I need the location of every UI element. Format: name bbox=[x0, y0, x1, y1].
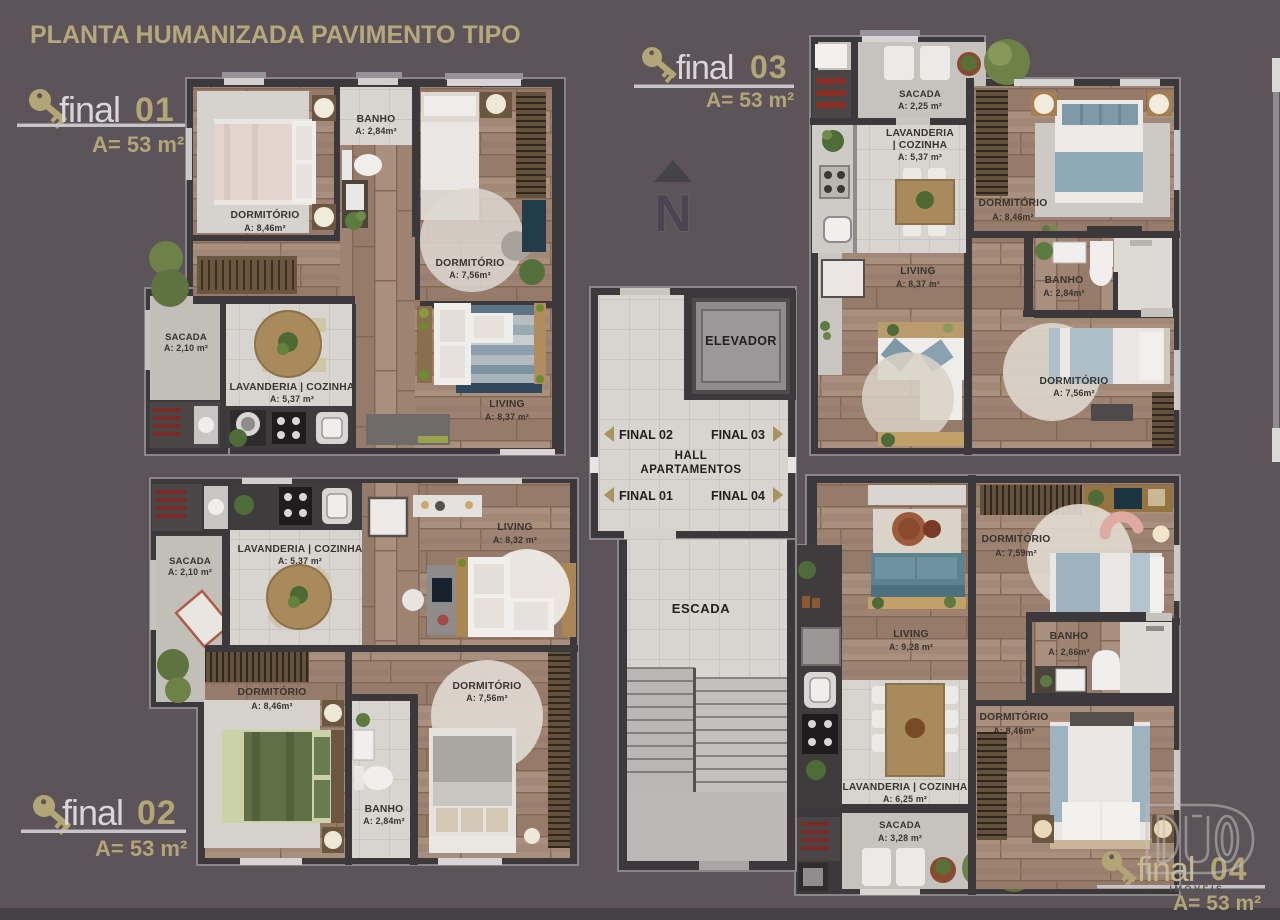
svg-text:A: 8,46m²: A: 8,46m² bbox=[251, 701, 292, 711]
svg-text:SACADA: SACADA bbox=[879, 820, 921, 831]
svg-text:DORMITÓRIO: DORMITÓRIO bbox=[436, 256, 505, 269]
svg-text:DORMITÓRIO: DORMITÓRIO bbox=[980, 710, 1049, 723]
svg-text:A: 8,37 m²: A: 8,37 m² bbox=[896, 279, 940, 289]
svg-text:A: 2,10 m²: A: 2,10 m² bbox=[164, 343, 208, 353]
svg-text:A: 6,25 m²: A: 6,25 m² bbox=[883, 794, 927, 804]
svg-text:LAVANDERIA: LAVANDERIA bbox=[886, 128, 954, 139]
svg-text:HALL: HALL bbox=[675, 450, 708, 462]
svg-text:| COZINHA: | COZINHA bbox=[893, 140, 948, 151]
svg-text:A: 5,37 m²: A: 5,37 m² bbox=[270, 394, 314, 404]
svg-text:FINAL 04: FINAL 04 bbox=[711, 489, 765, 503]
svg-text:A: 7,56m²: A: 7,56m² bbox=[466, 693, 507, 703]
svg-text:FINAL 03: FINAL 03 bbox=[711, 428, 765, 442]
svg-text:LIVING: LIVING bbox=[893, 629, 929, 640]
svg-text:APARTAMENTOS: APARTAMENTOS bbox=[640, 464, 741, 476]
svg-text:DORMITÓRIO: DORMITÓRIO bbox=[1040, 374, 1109, 387]
svg-text:ELEVADOR: ELEVADOR bbox=[705, 334, 777, 348]
svg-text:SACADA: SACADA bbox=[899, 89, 941, 100]
svg-text:FINAL 01: FINAL 01 bbox=[619, 489, 673, 503]
svg-text:SACADA: SACADA bbox=[169, 556, 211, 567]
svg-text:A: 7,56m²: A: 7,56m² bbox=[449, 270, 490, 280]
svg-text:final: final bbox=[62, 792, 123, 833]
svg-text:A: 5,37 m²: A: 5,37 m² bbox=[898, 152, 942, 162]
svg-text:final: final bbox=[676, 49, 733, 87]
svg-text:DORMITÓRIO: DORMITÓRIO bbox=[231, 208, 300, 221]
svg-text:LIVING: LIVING bbox=[489, 399, 525, 410]
svg-text:LIVING: LIVING bbox=[497, 522, 533, 533]
svg-text:ESCADA: ESCADA bbox=[672, 601, 731, 616]
svg-text:BANHO: BANHO bbox=[1045, 275, 1084, 286]
svg-text:A: 7,56m²: A: 7,56m² bbox=[1053, 388, 1094, 398]
svg-text:A: 3,28 m²: A: 3,28 m² bbox=[878, 833, 922, 843]
svg-text:SACADA: SACADA bbox=[165, 332, 207, 343]
svg-text:A: 9,28 m²: A: 9,28 m² bbox=[889, 642, 933, 652]
svg-text:BANHO: BANHO bbox=[365, 804, 404, 815]
svg-text:A= 53 m²: A= 53 m² bbox=[95, 836, 187, 861]
svg-text:LIVING: LIVING bbox=[900, 266, 936, 277]
svg-text:LAVANDERIA | COZINHA: LAVANDERIA | COZINHA bbox=[229, 382, 354, 393]
svg-text:A: 8,37 m²: A: 8,37 m² bbox=[485, 412, 529, 422]
svg-text:02: 02 bbox=[137, 794, 177, 832]
svg-text:A: 8,46m²: A: 8,46m² bbox=[244, 223, 285, 233]
svg-text:A: 2,84m²: A: 2,84m² bbox=[355, 126, 396, 136]
svg-text:A= 53 m²: A= 53 m² bbox=[706, 89, 794, 112]
svg-text:03: 03 bbox=[750, 49, 788, 85]
svg-text:FINAL 02: FINAL 02 bbox=[619, 428, 673, 442]
svg-text:A: 2,25 m²: A: 2,25 m² bbox=[898, 101, 942, 111]
svg-text:A= 53 m²: A= 53 m² bbox=[1173, 892, 1261, 915]
svg-text:DORMITÓRIO: DORMITÓRIO bbox=[238, 685, 307, 698]
svg-text:LAVANDERIA | COZINHA: LAVANDERIA | COZINHA bbox=[842, 782, 967, 793]
svg-text:A: 8,46m²: A: 8,46m² bbox=[992, 212, 1033, 222]
svg-text:A: 2,84m²: A: 2,84m² bbox=[363, 816, 404, 826]
svg-text:A: 8,32 m²: A: 8,32 m² bbox=[493, 535, 537, 545]
svg-text:LAVANDERIA | COZINHA: LAVANDERIA | COZINHA bbox=[237, 544, 362, 555]
svg-text:BANHO: BANHO bbox=[357, 114, 396, 125]
svg-text:A: 2,10 m²: A: 2,10 m² bbox=[168, 567, 212, 577]
svg-text:N: N bbox=[654, 185, 692, 243]
svg-text:A: 7,59m²: A: 7,59m² bbox=[995, 548, 1036, 558]
svg-text:DORMITÓRIO: DORMITÓRIO bbox=[453, 679, 522, 692]
svg-text:DORMITÓRIO: DORMITÓRIO bbox=[979, 196, 1048, 209]
svg-text:01: 01 bbox=[135, 91, 175, 129]
svg-text:A: 2,84m²: A: 2,84m² bbox=[1043, 288, 1084, 298]
svg-text:DORMITÓRIO: DORMITÓRIO bbox=[982, 532, 1051, 545]
svg-text:BANHO: BANHO bbox=[1050, 631, 1089, 642]
svg-text:A= 53 m²: A= 53 m² bbox=[92, 132, 184, 157]
svg-text:A: 2,66m²: A: 2,66m² bbox=[1048, 647, 1089, 657]
svg-text:PLANTA HUMANIZADA PAVIMENTO TI: PLANTA HUMANIZADA PAVIMENTO TIPO bbox=[30, 21, 521, 49]
